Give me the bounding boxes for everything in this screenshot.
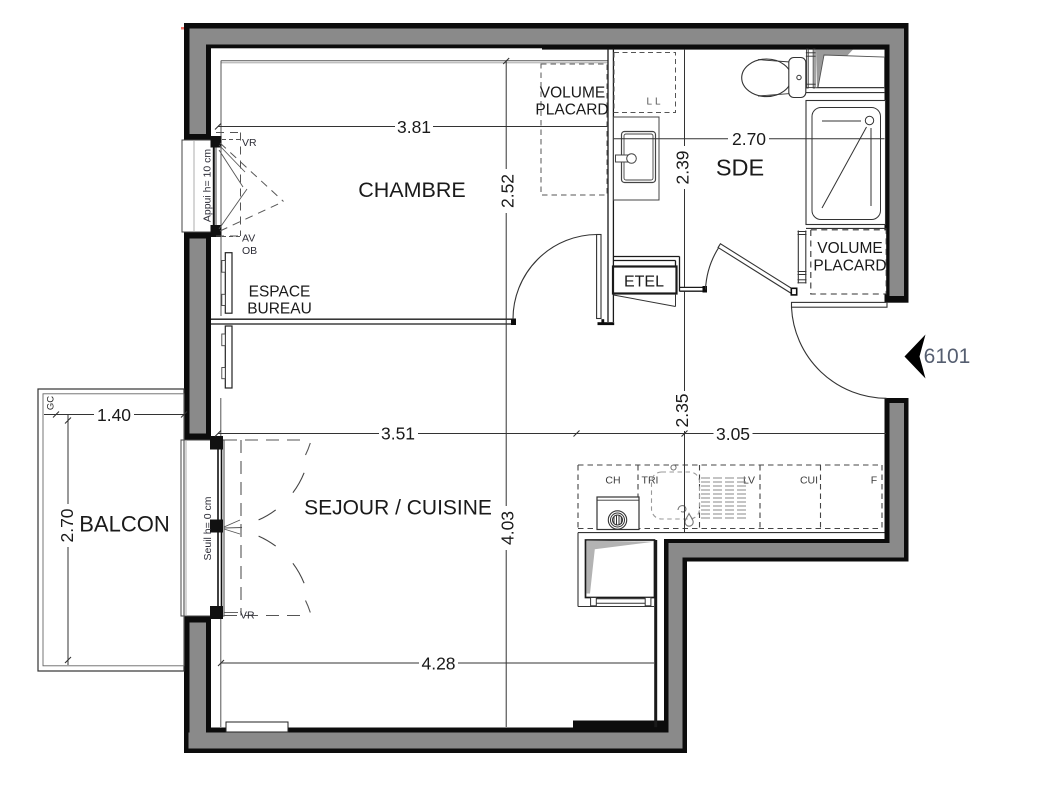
svg-text:PLACARD: PLACARD	[813, 258, 886, 275]
svg-text:TRI: TRI	[642, 475, 659, 487]
svg-text:AV: AV	[242, 233, 255, 245]
svg-text:VOLUME: VOLUME	[817, 240, 882, 257]
svg-text:2.39: 2.39	[673, 150, 693, 184]
svg-text:1.40: 1.40	[97, 405, 131, 425]
svg-text:LV: LV	[743, 475, 755, 487]
svg-text:3.51: 3.51	[381, 424, 415, 444]
svg-text:Seuil h= 0 cm: Seuil h= 0 cm	[202, 496, 214, 560]
svg-text:2.70: 2.70	[732, 129, 766, 149]
svg-text:ETEL: ETEL	[624, 274, 664, 291]
svg-text:SDE: SDE	[716, 155, 764, 181]
svg-text:3.81: 3.81	[397, 117, 431, 137]
svg-text:2.35: 2.35	[672, 393, 692, 427]
svg-text:Appui h= 10 cm: Appui h= 10 cm	[202, 149, 214, 223]
svg-text:4.28: 4.28	[421, 654, 455, 674]
svg-text:2.52: 2.52	[498, 174, 518, 208]
svg-text:VR: VR	[240, 610, 255, 622]
svg-text:F: F	[871, 475, 877, 487]
svg-text:2.70: 2.70	[57, 508, 77, 542]
svg-text:CH: CH	[605, 475, 620, 487]
svg-text:BALCON: BALCON	[79, 512, 169, 537]
svg-text:PLACARD: PLACARD	[535, 102, 608, 119]
svg-text:SEJOUR / CUISINE: SEJOUR / CUISINE	[304, 497, 492, 520]
svg-text:ESPACE: ESPACE	[249, 284, 311, 301]
svg-text:VR: VR	[242, 137, 257, 149]
svg-text:CUI: CUI	[800, 475, 818, 487]
svg-text:GC: GC	[46, 396, 57, 410]
svg-text:6101: 6101	[924, 345, 971, 368]
svg-text:VOLUME: VOLUME	[540, 85, 605, 102]
svg-text:4.03: 4.03	[498, 511, 518, 545]
svg-text:BUREAU: BUREAU	[247, 301, 312, 318]
svg-text:3.05: 3.05	[716, 424, 750, 444]
svg-text:LL: LL	[646, 97, 663, 108]
svg-text:CHAMBRE: CHAMBRE	[358, 178, 466, 202]
svg-text:OB: OB	[242, 245, 257, 257]
